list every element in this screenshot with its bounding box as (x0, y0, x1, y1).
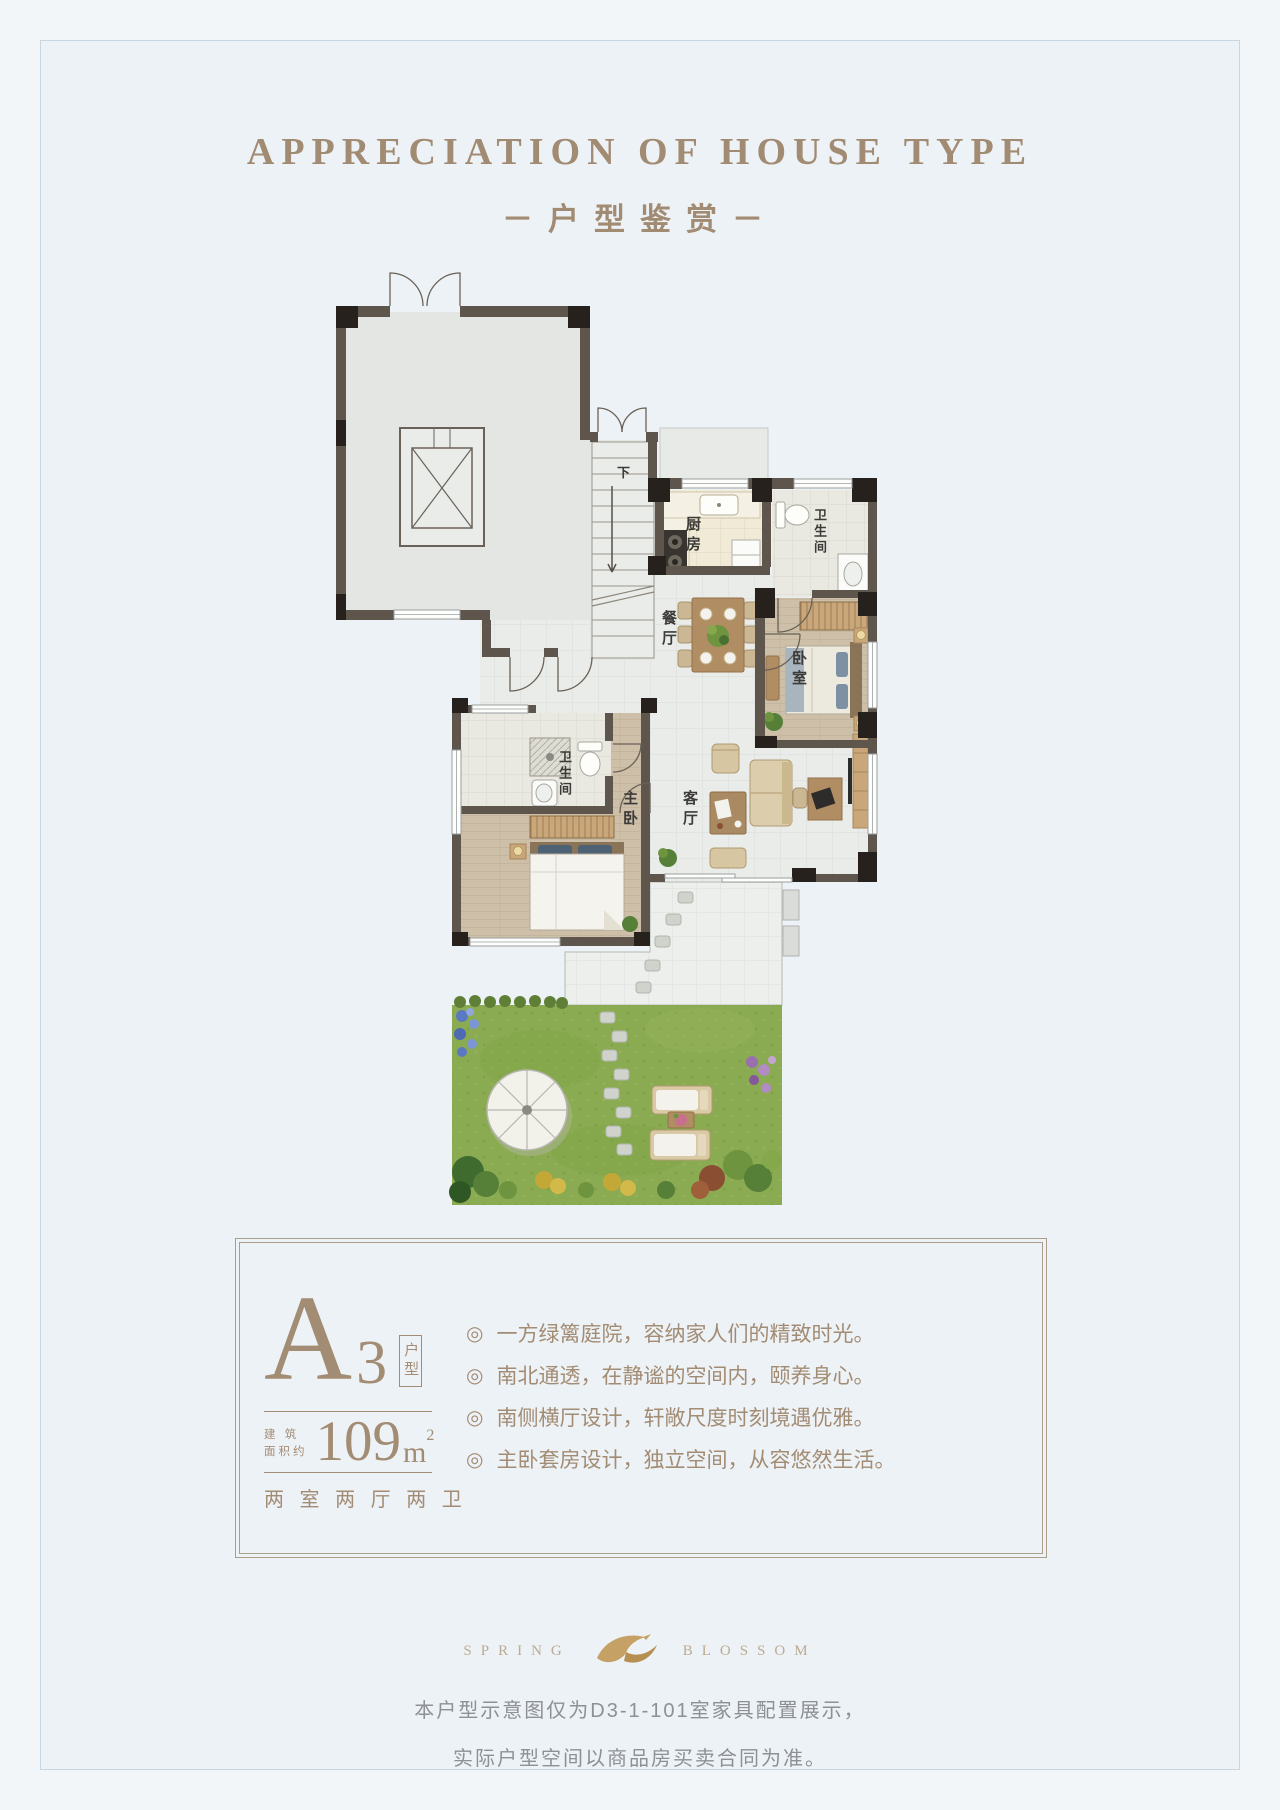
feature-bullets: ◎ 一方绿篱庭院，容纳家人们的精致时光。 ◎ 南北通透，在静谧的空间内，颐养身心… (466, 1323, 1026, 1472)
stairs-down-label: 下 (617, 462, 630, 481)
feature-bullet: ◎ 南侧横厅设计，轩敞尺度时刻境遇优雅。 (466, 1407, 1026, 1430)
bullet-text: 南北通透，在静谧的空间内，颐养身心。 (496, 1365, 874, 1388)
sofa (750, 760, 792, 826)
swallow-bird-icon (591, 1628, 663, 1674)
bullet-icon: ◎ (466, 1407, 483, 1429)
area-prefix-line1: 建 筑 (264, 1429, 299, 1441)
divider-line (264, 1472, 432, 1473)
unit-type-number: 3 (356, 1339, 387, 1389)
unit-type: A 3 户型 (264, 1289, 422, 1389)
master-bed (530, 842, 624, 930)
area-prefix: 建 筑 面积约 (264, 1427, 308, 1460)
unit-info-box: A 3 户型 建 筑 面积约 109 m 2 两 室 两 厅 两 卫 ◎ 一方绿… (235, 1238, 1047, 1558)
master-bedroom-label: 主卧 (622, 790, 637, 830)
unit-area: 建 筑 面积约 109 m 2 (264, 1419, 434, 1466)
plant (622, 916, 638, 932)
bullet-icon: ◎ (466, 1449, 483, 1471)
garden-table (668, 1112, 694, 1128)
bedroom (764, 598, 868, 748)
wardrobe (800, 602, 868, 630)
page-title: APPRECIATION OF HOUSE TYPE (0, 130, 1280, 174)
disclaimer-line-2: 实际户型空间以商品房买卖合同为准。 (0, 1742, 1280, 1771)
unit-type-tag: 户型 (399, 1335, 422, 1387)
bullet-text: 主卧套房设计，独立空间，从容悠然生活。 (496, 1449, 895, 1472)
master-suite (461, 713, 641, 943)
dining-label: 餐厅 (661, 610, 676, 650)
bench (710, 848, 746, 868)
bullet-text: 一方绿篱庭院，容纳家人们的精致时光。 (496, 1323, 874, 1346)
unit-type-letter: A (264, 1289, 352, 1389)
page-subtitle: －户型鉴赏－ (0, 194, 1280, 239)
bullet-icon: ◎ (466, 1323, 483, 1345)
feature-bullet: ◎ 主卧套房设计，独立空间，从容悠然生活。 (466, 1449, 1026, 1472)
wardrobe-master (530, 816, 614, 838)
ac-unit (783, 890, 799, 920)
kitchen (663, 490, 763, 574)
area-exponent: 2 (426, 1428, 434, 1444)
bedroom-label: 卧室 (791, 650, 806, 690)
floor-plan (330, 270, 885, 1215)
disclaimer-line-1: 本户型示意图仅为D3-1-101室家具配置展示， (0, 1694, 1280, 1723)
bath-top-label: 卫生间 (813, 508, 826, 556)
dining-set (678, 598, 758, 672)
area-value: 109 (316, 1419, 402, 1466)
coffee-table (710, 792, 746, 834)
ac-unit (783, 926, 799, 956)
kitchen-label: 厨房 (685, 516, 700, 556)
living-label: 客厅 (682, 790, 697, 830)
bullet-text: 南侧横厅设计，轩敞尺度时刻境遇优雅。 (496, 1407, 874, 1430)
area-prefix-line2: 面积约 (264, 1446, 308, 1458)
armchair (712, 744, 739, 773)
bathroom-vanity (838, 554, 868, 594)
brand-word-right: BLOSSOM (683, 1643, 817, 1660)
bath-master-label: 卫生间 (558, 750, 571, 798)
area-unit: m (403, 1439, 426, 1466)
washbasin (532, 780, 557, 806)
garden-lounger (650, 1130, 710, 1160)
bedroom-bench (766, 656, 779, 700)
feature-bullet: ◎ 南北通透，在静谧的空间内，颐养身心。 (466, 1365, 1026, 1388)
garden-lounger (652, 1086, 712, 1114)
bullet-icon: ◎ (466, 1365, 483, 1387)
brochure-page: { "header": { "title_en": "APPRECIATION … (0, 0, 1280, 1810)
brand-logo: SPRING BLOSSOM (0, 1628, 1280, 1674)
feature-bullet: ◎ 一方绿篱庭院，容纳家人们的精致时光。 (466, 1323, 1026, 1346)
brand-word-left: SPRING (463, 1643, 570, 1660)
garden (449, 995, 782, 1205)
elevator (400, 428, 484, 546)
rooms-summary: 两 室 两 厅 两 卫 (264, 1483, 436, 1512)
toilet-master (578, 742, 602, 776)
